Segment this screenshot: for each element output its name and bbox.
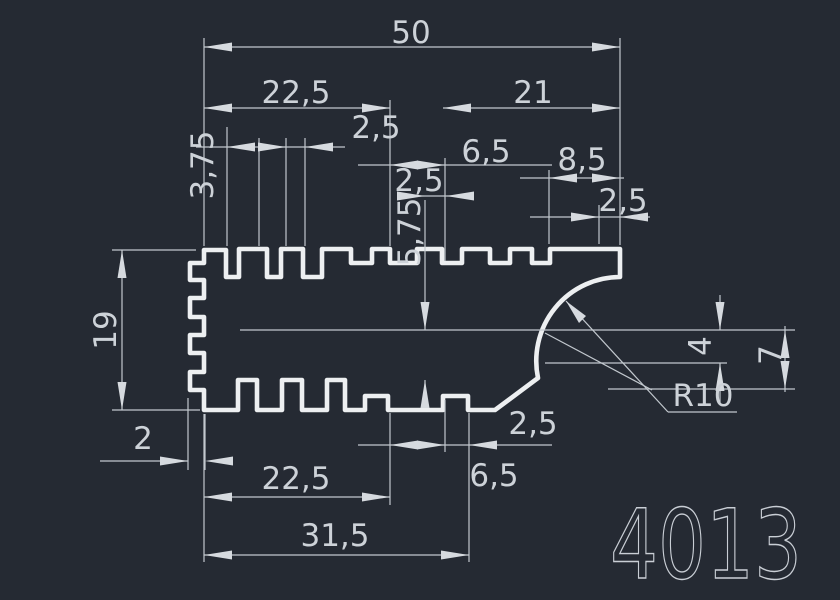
dim-19: 19 bbox=[88, 310, 124, 349]
dim-6-5-bottom: 6,5 bbox=[469, 458, 518, 494]
dim-5-75: 5,75 bbox=[392, 197, 428, 266]
dim-R10: R10 bbox=[673, 378, 734, 414]
dim-31-5: 31,5 bbox=[300, 518, 369, 554]
cad-drawing-viewport[interactable]: 5022,5212,53,756,58,52,52,55,751947R102,… bbox=[0, 0, 840, 600]
dim-2: 2 bbox=[133, 421, 153, 457]
dim-22-5-top: 22,5 bbox=[261, 75, 330, 111]
dim-50: 50 bbox=[391, 15, 430, 51]
dim-3-75: 3,75 bbox=[185, 130, 221, 199]
dim-2-5-right: 2,5 bbox=[598, 183, 647, 219]
dim-2-5-bottom: 2,5 bbox=[508, 406, 557, 442]
dim-8-5: 8,5 bbox=[557, 142, 606, 178]
dim-4: 4 bbox=[683, 336, 719, 356]
dim-2-5-mid: 2,5 bbox=[394, 163, 443, 199]
dim-22-5-bottom: 22,5 bbox=[261, 461, 330, 497]
dim-7: 7 bbox=[753, 345, 789, 365]
dim-6-5-top: 6,5 bbox=[461, 134, 510, 170]
dim-2-5-topleft: 2,5 bbox=[351, 110, 400, 146]
part-number: 4013 bbox=[610, 489, 802, 600]
dim-21: 21 bbox=[513, 75, 552, 111]
